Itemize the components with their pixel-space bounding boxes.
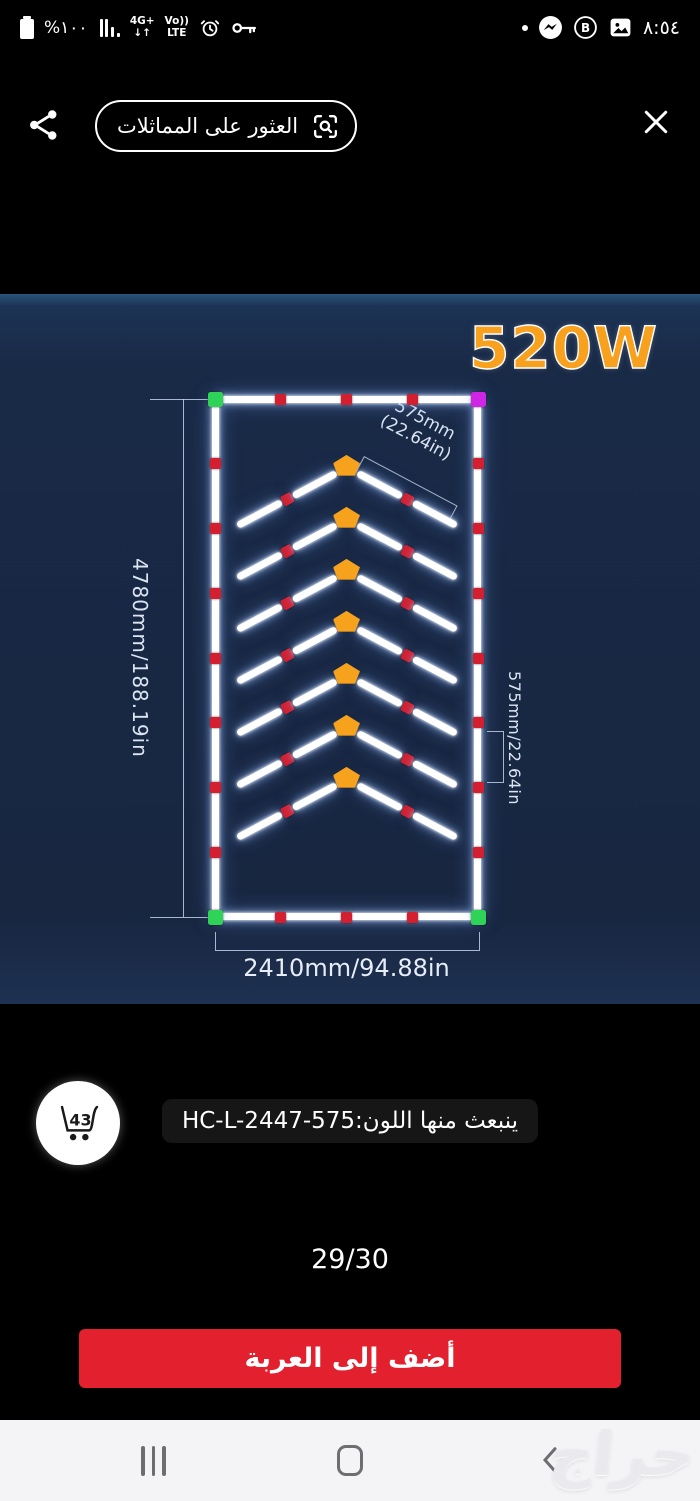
image-pager: 29/30 [0, 1244, 700, 1275]
chevron-arm [345, 568, 458, 632]
led-connector [275, 912, 286, 923]
led-tube-segment [291, 678, 338, 707]
chevron-arm [345, 724, 458, 788]
width-dimension-bracket [215, 932, 480, 951]
chevron-arrow-icon [333, 559, 360, 580]
messenger-icon [538, 15, 563, 40]
svg-text:B: B [581, 21, 590, 35]
b-chat-icon: B [573, 15, 598, 40]
led-connector [341, 394, 352, 405]
led-tube-segment [291, 730, 338, 759]
led-tube-segment [235, 759, 282, 788]
led-corner [208, 392, 223, 407]
chevron-arm [345, 516, 458, 580]
haraj-watermark: حراج [546, 1420, 698, 1490]
power-rating: 520W [469, 314, 658, 382]
find-similar-button[interactable]: العثور على المماثلات [95, 100, 357, 152]
led-tube-segment [235, 811, 282, 840]
alarm-icon [199, 17, 221, 39]
led-connector [473, 653, 484, 664]
led-connector [341, 912, 352, 923]
led-tube-segment [411, 707, 458, 736]
status-bar: %١٠٠ 4G+↓↑ Vo))LTE [0, 0, 700, 55]
led-connector [407, 394, 418, 405]
led-tube-segment [235, 499, 282, 528]
chevron-arm [235, 672, 348, 736]
chevron-arrow-icon [333, 767, 360, 788]
led-connector [210, 653, 221, 664]
led-tube-segment [355, 522, 402, 551]
volte-indicator: Vo))LTE [165, 16, 189, 38]
led-tube-segment [235, 603, 282, 632]
led-tube-segment [355, 782, 402, 811]
clock-time: ٨:٥٤ [643, 17, 680, 39]
led-tube-segment [411, 551, 458, 580]
chevron-arrow-icon [333, 611, 360, 632]
chevron-arm [235, 516, 348, 580]
led-tube-segment [291, 626, 338, 655]
led-connector [210, 717, 221, 728]
led-tube-segment [411, 655, 458, 684]
led-connector [210, 588, 221, 599]
chevron-arm [345, 620, 458, 684]
battery-icon [20, 19, 34, 39]
segment-dimension-label-right: 575mm/22.64in [505, 671, 524, 841]
led-connector [473, 717, 484, 728]
dimension-tick [150, 917, 216, 918]
chevron-arrow-icon [333, 663, 360, 684]
gallery-icon [608, 15, 633, 40]
status-right-cluster: B ٨:٥٤ [522, 15, 680, 40]
key-icon [231, 18, 258, 38]
led-connector [473, 523, 484, 534]
chevron-arm [235, 724, 348, 788]
led-connector [473, 588, 484, 599]
chevron-arrow-icon [333, 715, 360, 736]
battery-percent: %١٠٠ [44, 18, 88, 38]
led-connector [210, 782, 221, 793]
width-dimension-label: 2410mm/94.88in [215, 954, 478, 982]
led-tube-segment [355, 574, 402, 603]
chevron-arrow-icon [333, 507, 360, 528]
cart-badge-number: 43 [69, 1110, 91, 1129]
led-tube-segment [235, 707, 282, 736]
chevron-arm [345, 672, 458, 736]
led-corner [208, 910, 223, 925]
find-similar-label: العثور على المماثلات [117, 114, 298, 138]
led-tube-segment [355, 626, 402, 655]
led-tube-segment [355, 678, 402, 707]
led-connector [210, 523, 221, 534]
height-dimension-label: 4780mm/188.19in [118, 399, 162, 917]
chevron-arm [345, 776, 458, 840]
led-tube-segment [235, 551, 282, 580]
led-tube-segment [411, 759, 458, 788]
close-icon[interactable] [638, 104, 674, 144]
led-connector [275, 394, 286, 405]
chevron-arm [235, 464, 348, 528]
product-code-caption: ينبعث منها اللون:HC-L-2447-575 [162, 1099, 538, 1143]
product-image[interactable]: 520W 4780mm/188.19in 2410mm/94.88in 575m… [0, 294, 700, 1004]
network-type: 4G+↓↑ [130, 16, 155, 38]
led-corner [471, 910, 486, 925]
led-tube-segment [291, 470, 338, 499]
status-left-cluster: %١٠٠ 4G+↓↑ Vo))LTE [20, 16, 258, 39]
segment-dimension-bracket-top [355, 456, 458, 523]
chevron-arm [235, 568, 348, 632]
led-tube-segment [411, 603, 458, 632]
chevron-arrow-icon [333, 455, 360, 476]
segment-dimension-bracket-right [487, 731, 504, 783]
cart-badge: 43 [36, 1081, 120, 1165]
cart-icon: 43 [51, 1096, 105, 1150]
led-tube-segment [235, 655, 282, 684]
led-connector [473, 782, 484, 793]
phone-screen: %١٠٠ 4G+↓↑ Vo))LTE [0, 0, 700, 1501]
led-tube-segment [291, 574, 338, 603]
led-tube-segment [291, 782, 338, 811]
chevron-arm [235, 776, 348, 840]
home-button[interactable] [337, 1445, 363, 1476]
led-connector [407, 912, 418, 923]
led-tube-segment [291, 522, 338, 551]
led-tube-segment [355, 730, 402, 759]
led-connector [210, 458, 221, 469]
android-nav-bar: حراج [0, 1420, 700, 1501]
led-connector [473, 847, 484, 858]
scan-search-icon [310, 111, 341, 142]
notification-dot-icon [522, 25, 528, 31]
height-dimension-line [183, 399, 184, 917]
recents-button[interactable] [141, 1446, 166, 1476]
led-connector [473, 458, 484, 469]
image-viewer-toolbar: العثور على المماثلات [0, 94, 700, 156]
signal-icon [100, 19, 120, 37]
share-button[interactable] [26, 106, 62, 148]
led-connector [210, 847, 221, 858]
add-to-cart-button[interactable]: أضف إلى العربة [79, 1329, 621, 1388]
led-tube-segment [411, 811, 458, 840]
led-corner [471, 392, 486, 407]
chevron-arm [235, 620, 348, 684]
